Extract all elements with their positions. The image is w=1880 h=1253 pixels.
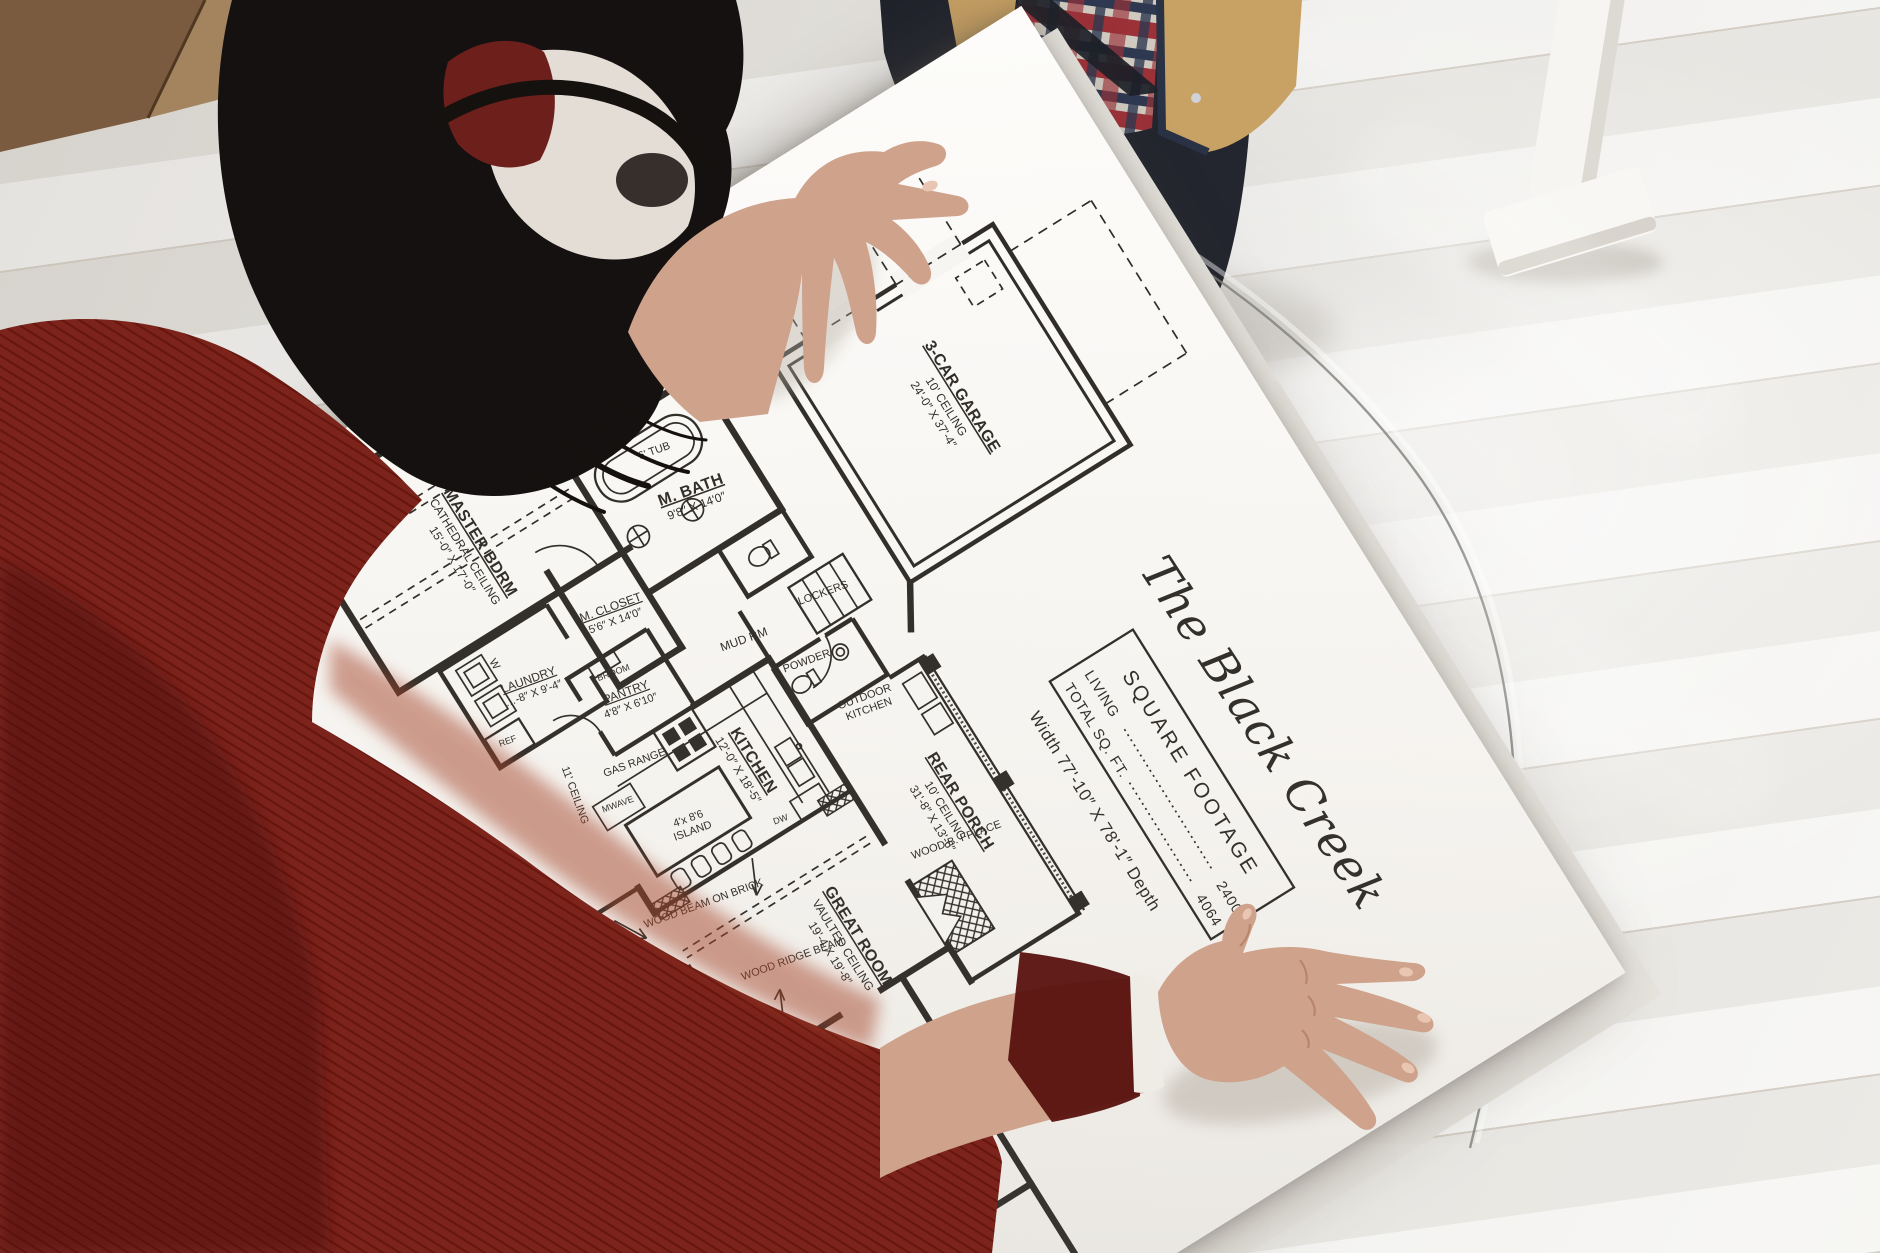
glasses-lens	[616, 153, 688, 207]
photo-scene: 3-CAR GARAGE 10' CEILING 24'-0″ X 37'-4″…	[0, 0, 1880, 1253]
seated-person	[0, 0, 1434, 1253]
foreground-layer	[0, 0, 1880, 1253]
